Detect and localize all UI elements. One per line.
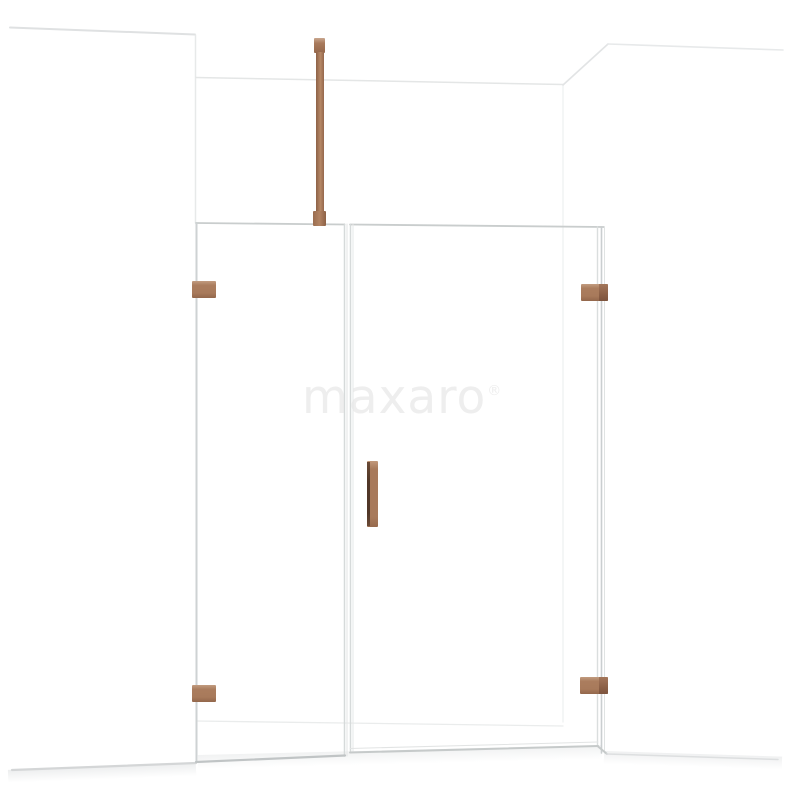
- left-wall-top-edge: [10, 28, 195, 35]
- hinge-right-top-clamp: [599, 284, 608, 301]
- back-wall-floor-line: [196, 721, 563, 726]
- door-top-edge: [350, 225, 604, 228]
- hinge-right-bottom-clamp: [599, 677, 608, 694]
- right-wall-top-edge: [608, 44, 783, 50]
- ceiling-bar-mount: [314, 38, 325, 53]
- ceiling-support-bar: [316, 52, 324, 212]
- door-handle-shadow-edge: [367, 462, 370, 526]
- door-handle: [367, 461, 378, 527]
- fixed-panel-bottom-edge: [196, 756, 345, 763]
- hinge-right-bottom: [580, 677, 608, 694]
- right-wall-front-edge: [563, 44, 608, 85]
- right-wall-floor-line: [607, 754, 778, 760]
- scene-line-art: [0, 0, 800, 800]
- ceiling-bar-glass-clamp: [313, 211, 326, 226]
- left-wall-floor-line: [12, 763, 196, 770]
- product-image: maxaro®: [0, 0, 800, 800]
- hinge-left-bottom: [192, 685, 216, 702]
- back-wall-top-edge: [196, 78, 563, 85]
- door-bottom-edge: [350, 746, 598, 753]
- hinge-left-top: [192, 281, 216, 298]
- hinge-right-top: [581, 284, 608, 301]
